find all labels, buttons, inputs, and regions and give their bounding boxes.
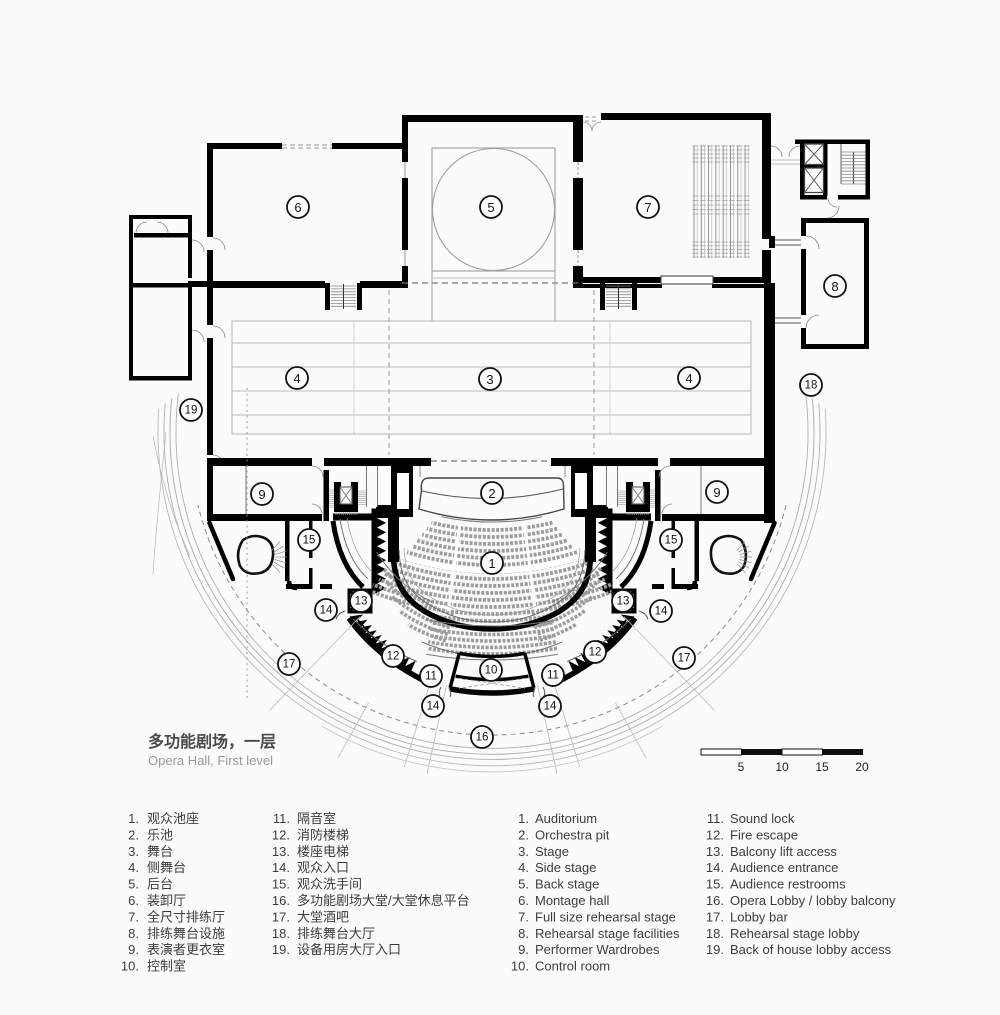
svg-text:11: 11 [547,670,559,682]
svg-text:18.: 18. [272,926,290,941]
svg-text:12: 12 [589,647,602,659]
svg-text:3: 3 [486,372,493,387]
svg-text:15: 15 [815,760,829,774]
svg-text:10: 10 [485,665,498,677]
svg-text:观众池座: 观众池座 [147,811,199,826]
svg-text:Orchestra pit: Orchestra pit [535,827,610,842]
svg-text:4.: 4. [128,860,139,875]
svg-text:19: 19 [185,405,198,417]
svg-text:18.: 18. [706,926,724,941]
svg-text:楼座电梯: 楼座电梯 [297,844,349,859]
svg-text:8: 8 [831,279,838,294]
svg-text:9.: 9. [128,942,139,957]
svg-text:4.: 4. [518,860,529,875]
svg-text:Auditorium: Auditorium [535,811,597,826]
svg-text:侧舞台: 侧舞台 [147,860,186,875]
svg-text:6.: 6. [518,893,529,908]
svg-text:13: 13 [355,596,368,608]
svg-text:7: 7 [644,200,651,215]
svg-text:排练舞台大厅: 排练舞台大厅 [297,926,375,941]
svg-text:5.: 5. [128,877,139,892]
svg-text:1.: 1. [128,811,139,826]
svg-text:6: 6 [294,200,301,215]
svg-text:17: 17 [283,659,296,671]
svg-text:Side stage: Side stage [535,860,596,875]
svg-text:14: 14 [655,606,668,618]
svg-text:舞台: 舞台 [147,844,173,859]
svg-text:Back of house lobby access: Back of house lobby access [730,942,892,957]
svg-text:6.: 6. [128,893,139,908]
svg-text:Sound lock: Sound lock [730,811,795,826]
svg-text:3.: 3. [128,844,139,859]
svg-text:9.: 9. [518,942,529,957]
svg-text:15.: 15. [706,877,724,892]
svg-text:11: 11 [425,671,437,683]
svg-text:10.: 10. [511,959,529,974]
svg-text:17: 17 [678,653,691,665]
svg-text:3.: 3. [518,844,529,859]
svg-text:7.: 7. [518,909,529,924]
svg-text:16: 16 [476,732,489,744]
svg-text:装卸厅: 装卸厅 [147,893,186,908]
svg-text:全尺寸排练厅: 全尺寸排练厅 [147,909,225,924]
svg-text:13.: 13. [272,844,290,859]
svg-text:乐池: 乐池 [147,827,173,842]
svg-text:16.: 16. [706,893,724,908]
svg-text:17.: 17. [706,909,724,924]
svg-text:Audience entrance: Audience entrance [730,860,838,875]
svg-text:12: 12 [387,651,400,663]
svg-text:20: 20 [855,760,869,774]
svg-text:Lobby bar: Lobby bar [730,909,788,924]
svg-text:Fire escape: Fire escape [730,827,798,842]
svg-text:Opera Hall, First level: Opera Hall, First level [148,753,273,768]
svg-text:14.: 14. [272,860,290,875]
svg-text:Full size rehearsal stage: Full size rehearsal stage [535,909,676,924]
svg-text:19.: 19. [706,942,724,957]
svg-text:Montage hall: Montage hall [535,893,610,908]
svg-text:17.: 17. [272,909,290,924]
svg-text:Control room: Control room [535,959,610,974]
svg-text:7.: 7. [128,909,139,924]
svg-text:5: 5 [738,760,745,774]
svg-text:9: 9 [258,487,265,502]
svg-text:表演者更衣室: 表演者更衣室 [147,942,225,957]
svg-text:后台: 后台 [147,877,173,892]
svg-text:Balcony lift access: Balcony lift access [730,844,837,859]
svg-text:观众入口: 观众入口 [297,860,349,875]
svg-text:14.: 14. [706,860,724,875]
svg-text:多功能剧场，一层: 多功能剧场，一层 [148,732,276,751]
svg-text:消防楼梯: 消防楼梯 [297,827,349,842]
svg-text:15: 15 [665,535,678,547]
svg-text:14: 14 [544,701,557,713]
svg-text:5: 5 [487,200,494,215]
svg-text:Rehearsal stage lobby: Rehearsal stage lobby [730,926,860,941]
svg-text:观众洗手间: 观众洗手间 [297,877,362,892]
svg-text:10: 10 [775,760,789,774]
svg-text:1.: 1. [518,811,529,826]
svg-text:2.: 2. [128,827,139,842]
svg-text:19.: 19. [272,942,290,957]
svg-text:13.: 13. [706,844,724,859]
svg-text:排练舞台设施: 排练舞台设施 [147,926,225,941]
svg-text:13: 13 [617,596,630,608]
svg-text:控制室: 控制室 [147,959,186,974]
svg-text:大堂酒吧: 大堂酒吧 [297,909,349,924]
svg-text:Performer Wardrobes: Performer Wardrobes [535,942,660,957]
svg-text:9: 9 [713,485,720,500]
svg-text:Back stage: Back stage [535,877,599,892]
svg-text:Rehearsal stage facilities: Rehearsal stage facilities [535,926,680,941]
svg-text:11.: 11. [273,811,290,826]
svg-text:5.: 5. [518,877,529,892]
svg-text:18: 18 [805,380,818,392]
svg-text:12.: 12. [706,827,724,842]
svg-text:10.: 10. [121,959,139,974]
svg-text:1: 1 [488,556,495,571]
svg-text:隔音室: 隔音室 [297,811,336,826]
svg-text:4: 4 [293,371,300,386]
svg-text:Opera Lobby / lobby balcony: Opera Lobby / lobby balcony [730,893,896,908]
svg-text:2: 2 [488,486,495,501]
svg-text:多功能剧场大堂/大堂休息平台: 多功能剧场大堂/大堂休息平台 [297,893,470,908]
svg-text:8.: 8. [518,926,529,941]
svg-text:14: 14 [427,701,440,713]
svg-text:Audience restrooms: Audience restrooms [730,877,846,892]
svg-text:16.: 16. [272,893,290,908]
svg-text:设备用房大厅入口: 设备用房大厅入口 [297,942,401,957]
svg-text:8.: 8. [128,926,139,941]
svg-text:15.: 15. [272,877,290,892]
svg-text:Stage: Stage [535,844,569,859]
svg-text:2.: 2. [518,827,529,842]
svg-text:12.: 12. [272,827,290,842]
svg-text:14: 14 [320,605,333,617]
svg-text:11.: 11. [707,811,724,826]
svg-text:4: 4 [685,371,692,386]
svg-text:15: 15 [303,535,316,547]
